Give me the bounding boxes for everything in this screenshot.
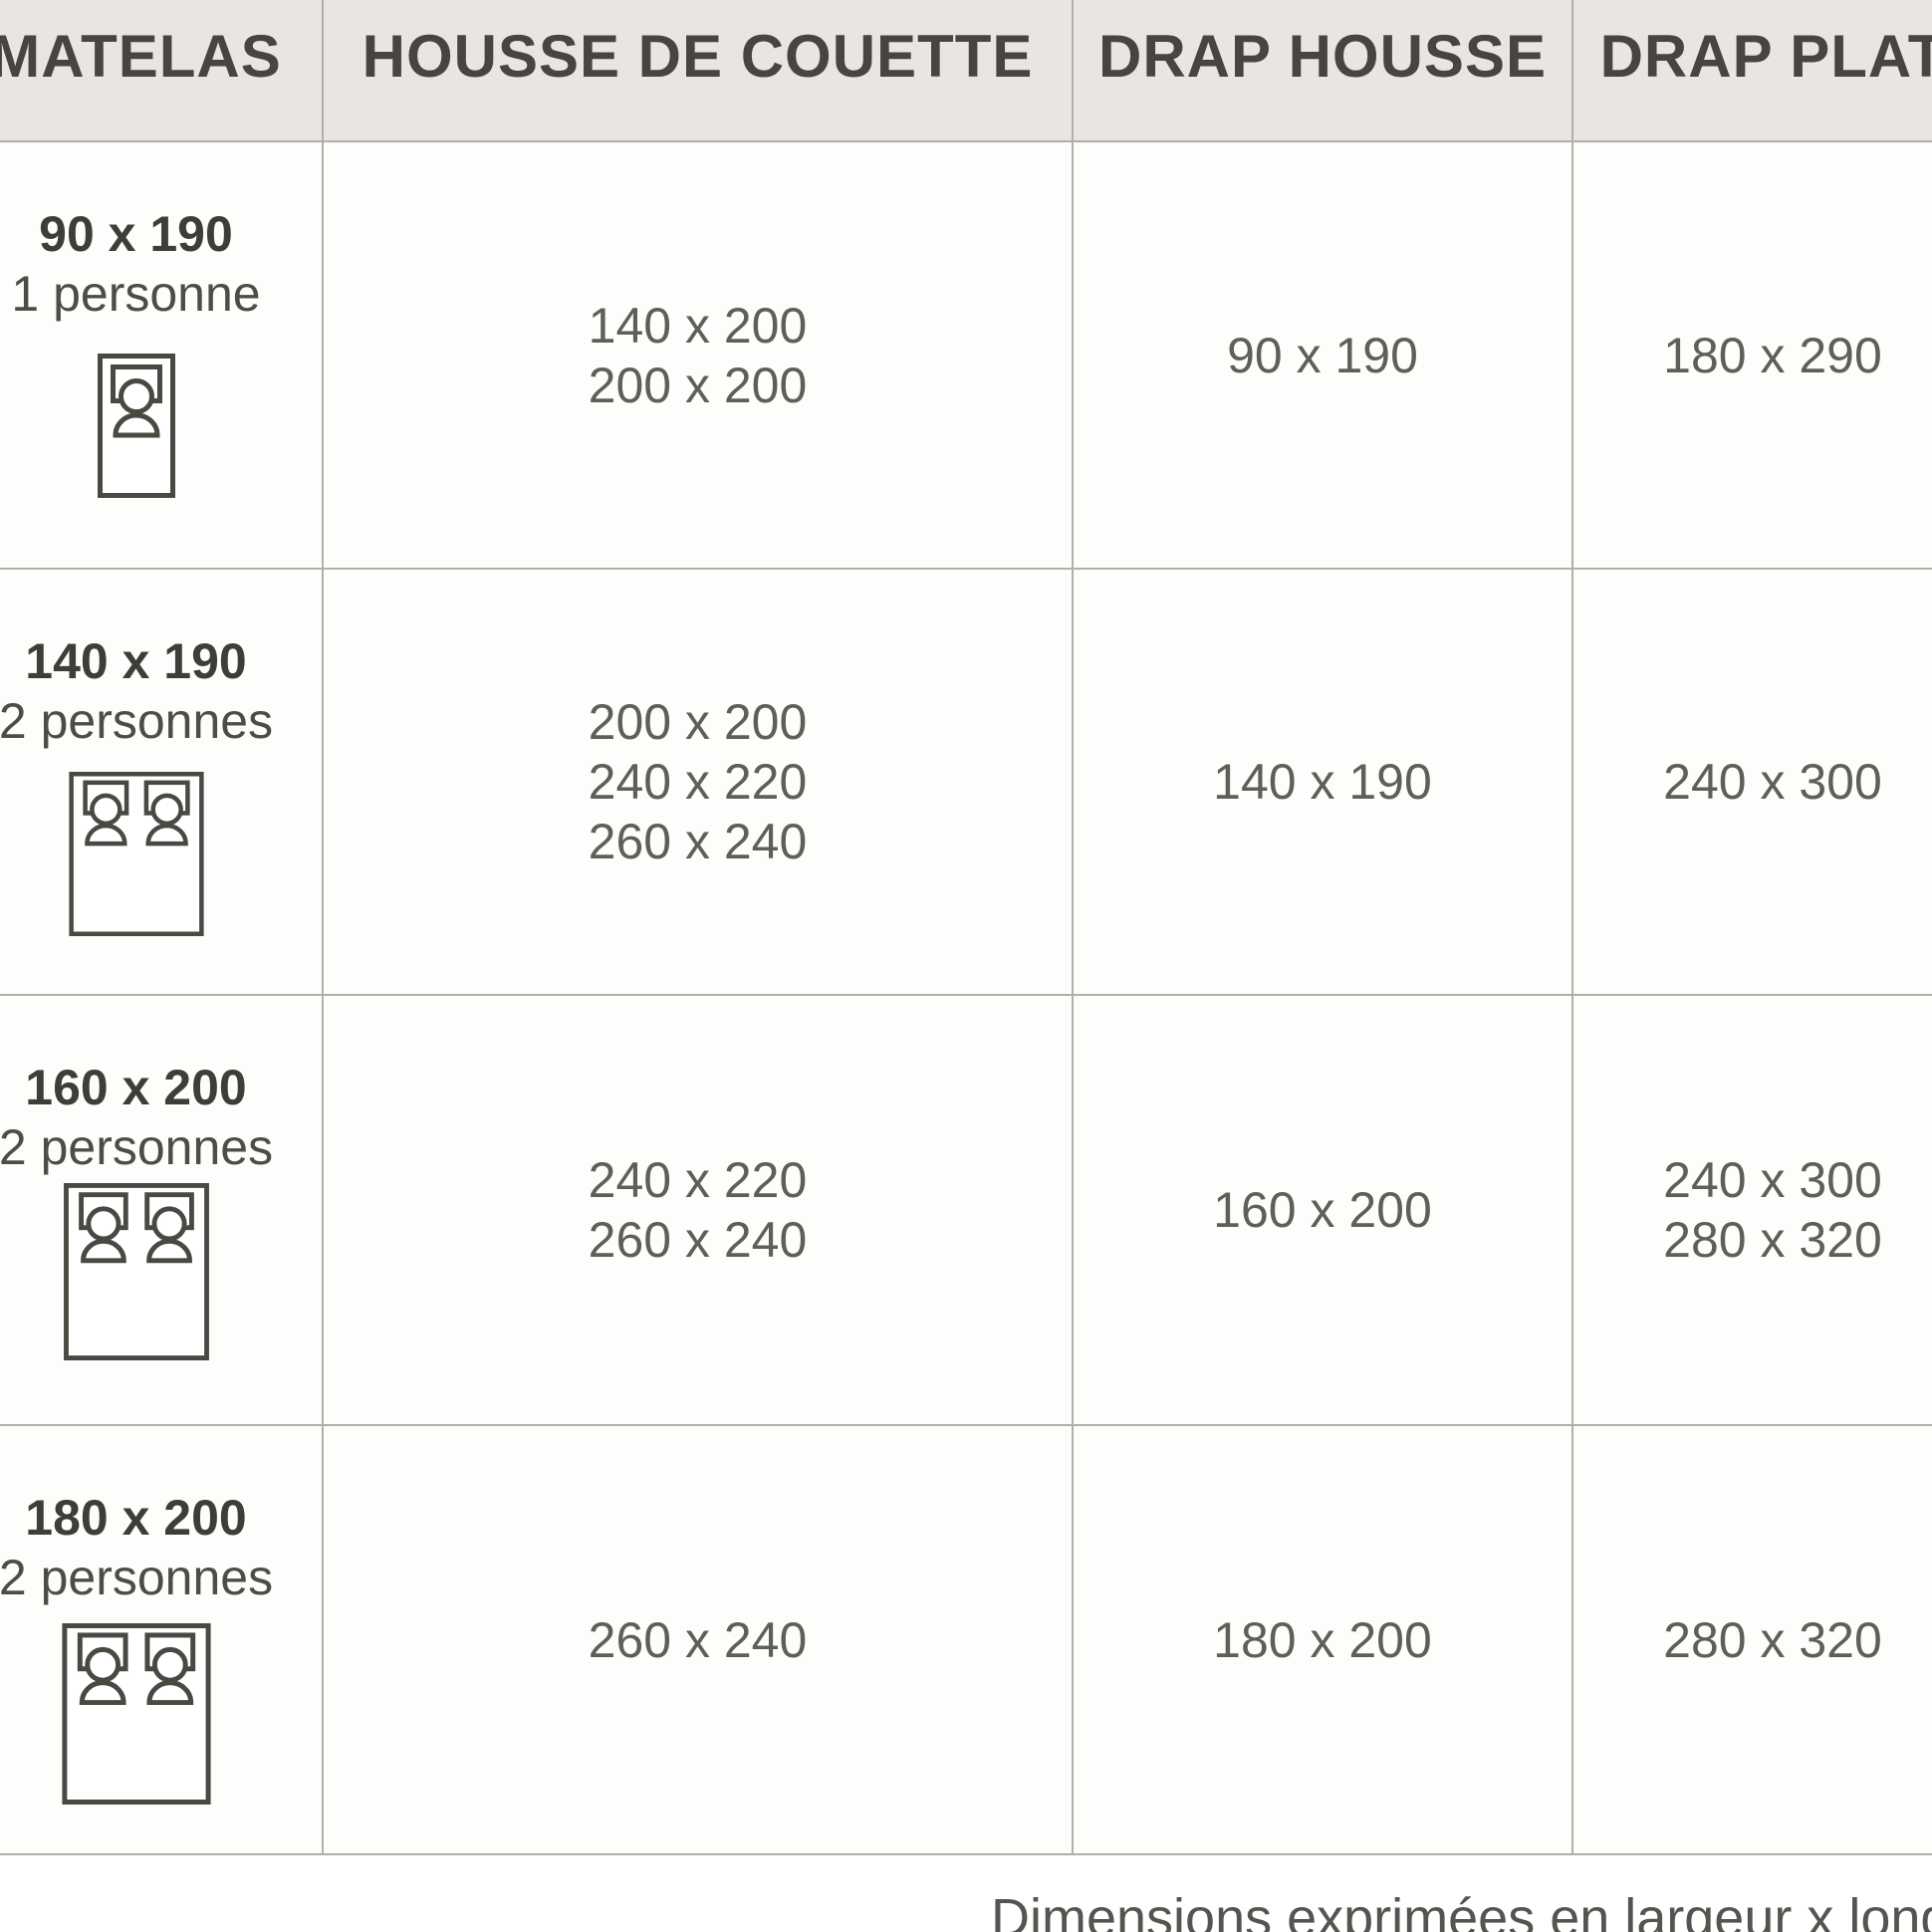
column-header-housse-de-couette: HOUSSE DE COUETTE: [324, 0, 1074, 140]
size-value: 140 x 200: [589, 296, 808, 356]
persons-label: 2 personnes: [0, 691, 273, 751]
size-value: 200 x 200: [589, 692, 808, 752]
matelas-cell: 90 x 190 1 personne: [0, 142, 324, 568]
size-table: MATELAS HOUSSE DE COUETTE DRAP HOUSSE DR…: [0, 0, 1932, 1855]
size-value: 260 x 240: [589, 812, 808, 871]
size-value: 240 x 300: [1663, 1150, 1882, 1210]
size-value: 260 x 240: [589, 1210, 808, 1270]
drap-plat-cell: 180 x 290: [1573, 142, 1932, 568]
column-header-drap-housse: DRAP HOUSSE: [1074, 0, 1573, 140]
mattress-size-label: 160 x 200: [25, 1058, 246, 1117]
bedding-size-chart: MATELAS HOUSSE DE COUETTE DRAP HOUSSE DR…: [0, 0, 1932, 1932]
table-header-row: MATELAS HOUSSE DE COUETTE DRAP HOUSSE DR…: [0, 0, 1932, 142]
size-value: 160 x 200: [1213, 1180, 1432, 1240]
table-row: 160 x 200 2 personnes 240 x 220 260 x 24…: [0, 996, 1932, 1426]
size-value: 200 x 200: [589, 356, 808, 415]
size-value: 140 x 190: [1213, 752, 1432, 812]
table-row: 180 x 200 2 personnes 260 x 240 180 x 20…: [0, 1426, 1932, 1855]
mattress-size-label: 90 x 190: [39, 204, 233, 264]
single-bed-icon: [98, 354, 175, 498]
drap-housse-cell: 140 x 190: [1074, 570, 1573, 994]
persons-label: 1 personne: [11, 264, 260, 324]
column-header-matelas: MATELAS: [0, 0, 324, 140]
column-header-drap-plat: DRAP PLAT: [1573, 0, 1932, 140]
drap-plat-cell: 280 x 320: [1573, 1426, 1932, 1853]
drap-housse-cell: 160 x 200: [1074, 996, 1573, 1424]
double-bed-icon: [51, 1623, 222, 1805]
dimensions-footnote: Dimensions exprimées en largeur x longue…: [991, 1890, 1932, 1932]
housse-de-couette-cell: 240 x 220 260 x 240: [324, 996, 1074, 1424]
matelas-cell: 180 x 200 2 personnes: [0, 1426, 324, 1853]
table-row: 90 x 190 1 personne 140 x 200 200 x 200 …: [0, 142, 1932, 570]
drap-plat-cell: 240 x 300: [1573, 570, 1932, 994]
size-value: 240 x 220: [589, 752, 808, 812]
housse-de-couette-cell: 140 x 200 200 x 200: [324, 142, 1074, 568]
size-value: 240 x 220: [589, 1150, 808, 1210]
size-value: 180 x 290: [1663, 326, 1882, 385]
drap-plat-cell: 240 x 300 280 x 320: [1573, 996, 1932, 1424]
matelas-cell: 140 x 190 2 personnes: [0, 570, 324, 994]
size-value: 180 x 200: [1213, 1610, 1432, 1670]
housse-de-couette-cell: 200 x 200 240 x 220 260 x 240: [324, 570, 1074, 994]
size-value: 280 x 320: [1663, 1610, 1882, 1670]
size-value: 280 x 320: [1663, 1210, 1882, 1270]
housse-de-couette-cell: 260 x 240: [324, 1426, 1074, 1853]
mattress-size-label: 180 x 200: [25, 1488, 246, 1548]
matelas-cell: 160 x 200 2 personnes: [0, 996, 324, 1424]
mattress-size-label: 140 x 190: [25, 631, 246, 691]
persons-label: 2 personnes: [0, 1548, 273, 1607]
drap-housse-cell: 180 x 200: [1074, 1426, 1573, 1853]
double-bed-icon: [68, 772, 205, 936]
drap-housse-cell: 90 x 190: [1074, 142, 1573, 568]
size-value: 240 x 300: [1663, 752, 1882, 812]
size-value: 90 x 190: [1227, 326, 1418, 385]
double-bed-icon: [62, 1183, 211, 1360]
table-row: 140 x 190 2 personnes 200 x 200 240 x 22…: [0, 570, 1932, 996]
size-value: 260 x 240: [589, 1610, 808, 1670]
persons-label: 2 personnes: [0, 1117, 273, 1177]
